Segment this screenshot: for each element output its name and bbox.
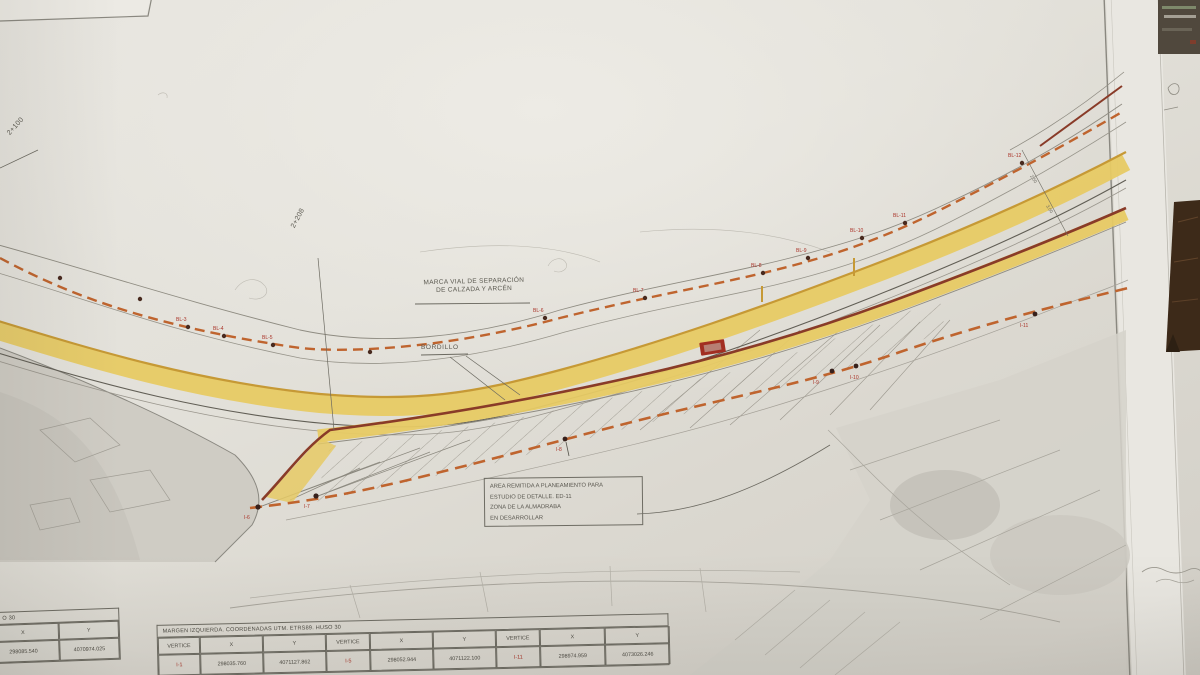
vertex-label: BL-12 [1008, 153, 1022, 159]
coord-cell: 298052.944 [370, 649, 433, 671]
table-grid: X Y 298085.540 4070974.025 [0, 620, 121, 665]
note-line4: EN DESARROLLAR [490, 512, 642, 524]
photo-of-road-plan-sheet: BL-3 BL-4 BL-5 BL-6 BL-7 BL-8 BL-9 BL-10… [0, 0, 1200, 675]
coordinates-table-left-partial: O 30 X Y 298085.540 4070974.025 [0, 608, 121, 665]
vertex-label: BL-7 [633, 288, 644, 294]
col-header: X [540, 628, 605, 646]
coord-cell: 298035.760 [200, 652, 263, 674]
vertex-label: I-8 [556, 447, 562, 453]
planning-note-box: AREA REMITIDA A PLANEAMIENTO PARA ESTUDI… [484, 476, 644, 527]
dark-wood-strip [1166, 200, 1200, 352]
coord-cell: 4071122.100 [433, 647, 496, 669]
col-header: Y [433, 630, 496, 648]
coord-cell: 298085.540 [0, 640, 60, 664]
vertex-label: I-6 [244, 515, 250, 521]
col-header: VERTICE [158, 637, 200, 655]
bordillo-label: BORDILLO [421, 344, 459, 351]
col-header: VERTICE [496, 629, 540, 647]
neighbour-paper-scribbles [1164, 84, 1179, 110]
coord-cell: 298974.959 [540, 645, 605, 667]
vertex-label: BL-5 [262, 335, 273, 341]
faint-contour-doodles [158, 93, 830, 299]
coord-cell: 4070974.025 [59, 638, 120, 661]
vertex-id-cell: I-11 [496, 646, 540, 668]
coord-cell: 4071127.862 [263, 651, 326, 673]
col-header: Y [263, 634, 326, 652]
vertex-label: BL-11 [893, 213, 906, 219]
vertex-label: BL-8 [751, 263, 762, 269]
top-left-sheet-corner [0, 0, 152, 21]
coord-cell: 4073026.246 [605, 643, 670, 665]
vertex-label: BL-3 [176, 317, 187, 323]
col-header: Y [605, 626, 670, 644]
col-header: X [200, 635, 263, 653]
col-header: VERTICE [326, 633, 370, 651]
vertex-id-cell: I-5 [326, 650, 370, 672]
vertex-id-cell: I-1 [158, 654, 200, 675]
neighbour-photo-thumbnail [1158, 0, 1200, 54]
plan-linework: BL-3 BL-4 BL-5 BL-6 BL-7 BL-8 BL-9 BL-10… [0, 0, 1200, 675]
vertex-label: BL-6 [533, 308, 544, 314]
col-header: X [370, 632, 433, 650]
vertex-label: BL-9 [796, 248, 807, 254]
vertex-label: BL-4 [213, 326, 224, 332]
vertex-label: I-9 [813, 380, 819, 386]
vertex-label: I-10 [850, 375, 859, 381]
coordinates-table-margen-izquierda: MARGEN IZQUIERDA. COORDENADAS UTM. ETRS8… [156, 613, 669, 675]
vertex-label: I-11 [1020, 323, 1028, 329]
col-header: Y [59, 621, 120, 640]
vertex-label: BL-10 [850, 228, 864, 234]
vertex-label: I-7 [304, 504, 310, 510]
